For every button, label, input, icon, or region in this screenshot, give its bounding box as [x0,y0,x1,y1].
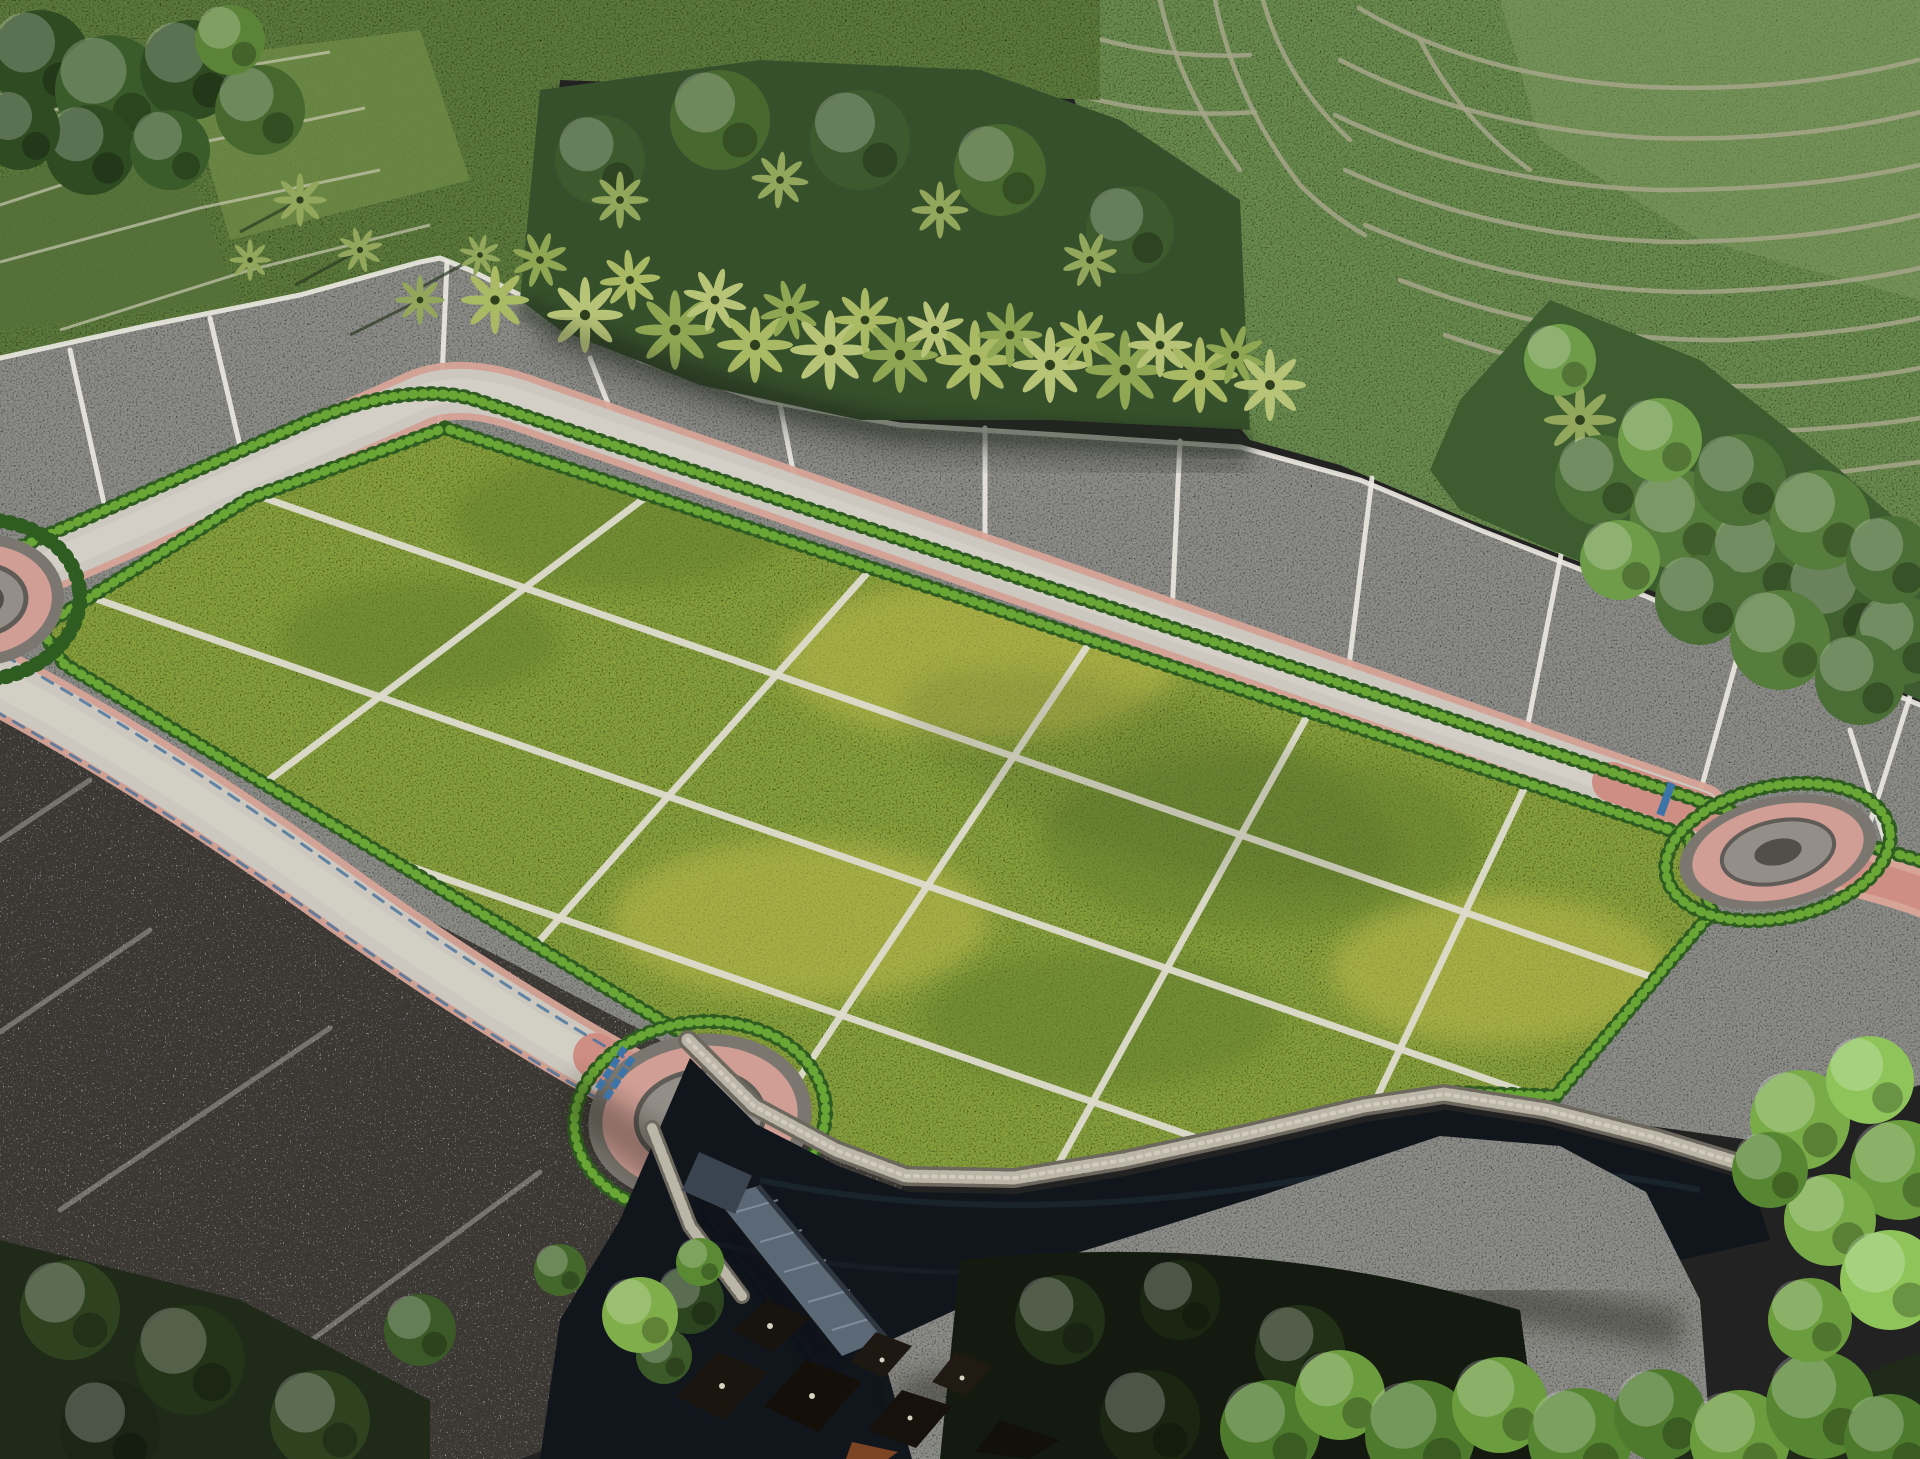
aerial-photo [0,0,1920,1459]
scene-canvas [0,0,1920,1459]
